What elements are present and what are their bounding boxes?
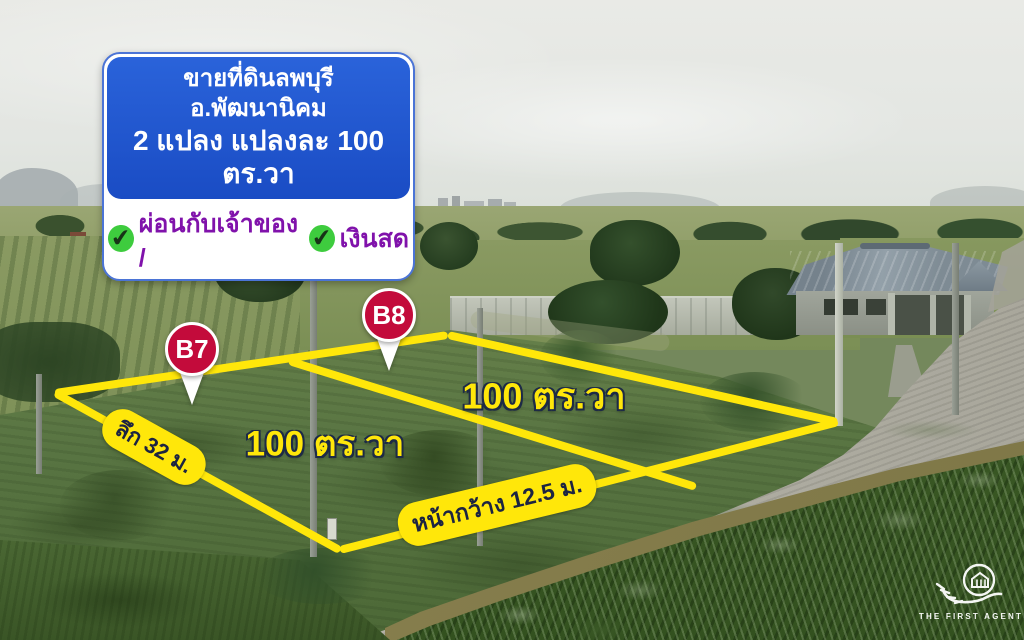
banner-subtitle: 2 แปลง แปลงละ 100 ตร.วา [113, 124, 404, 190]
power-pole [952, 243, 959, 415]
foreground-bush [60, 470, 180, 540]
tree-center-left [420, 222, 478, 270]
pin-b7-label: B7 [165, 322, 219, 376]
agency-name: THE FIRST AGENT [916, 612, 1024, 621]
banner-header: ขายที่ดินลพบุรี อ.พัฒนานิคม 2 แปลง แปลงล… [107, 57, 410, 199]
checkmark-icon: ✔ [308, 224, 336, 254]
plot-b7-area-label: 100 ตร.วา [246, 417, 405, 472]
house-window-small [866, 299, 886, 315]
payment-options-row: ✔ ผ่อนกับเจ้าของ / ✔ เงินสด [104, 202, 413, 279]
fence-post [36, 374, 42, 474]
plot-b8-area-label: 100 ตร.วา [462, 368, 625, 425]
banner-title: ขายที่ดินลพบุรี อ.พัฒนานิคม [113, 64, 404, 124]
hand-house-logo-icon [923, 560, 1019, 612]
house-roof-ridge [860, 243, 930, 249]
agency-watermark: THE FIRST AGENT [916, 560, 1024, 630]
porch-column [930, 295, 936, 335]
porch-column [964, 295, 971, 335]
unfinished-house [782, 243, 1008, 339]
payment-installment-label: ผ่อนกับเจ้าของ / [139, 204, 304, 273]
payment-cash-label: เงินสด [340, 219, 409, 259]
land-listing-photo: 100 ตร.วา 100 ตร.วา ลึก 32 ม. หน้ากว้าง … [0, 0, 1024, 640]
power-pole [310, 252, 317, 557]
porch-column [888, 293, 895, 335]
pin-b8-label: B8 [362, 288, 416, 342]
survey-stake [327, 518, 337, 540]
checkmark-icon: ✔ [107, 224, 135, 254]
power-pole [835, 243, 843, 426]
listing-banner: ขายที่ดินลพบุรี อ.พัฒนานิคม 2 แปลง แปลงล… [102, 52, 415, 281]
foreground-bush [256, 548, 386, 604]
